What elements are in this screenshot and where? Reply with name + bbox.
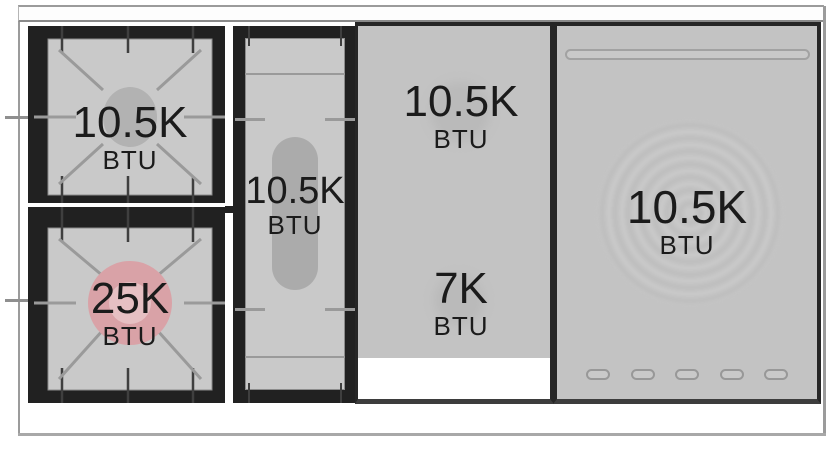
btu-value: 10.5K xyxy=(553,184,821,230)
btu-label-left-front: 25K BTU xyxy=(30,277,230,349)
griddle-line xyxy=(245,356,345,358)
grate-tick xyxy=(340,26,342,46)
grate-tick xyxy=(340,383,342,403)
btu-value: 10.5K xyxy=(30,101,230,145)
btu-label-right-zone: 10.5K BTU xyxy=(553,184,821,258)
grate-rail-bridge xyxy=(225,206,233,213)
grate-rail-stub xyxy=(325,118,355,121)
grate-tick xyxy=(248,383,250,403)
btu-label-griddle: 10.5K BTU xyxy=(233,172,357,238)
btu-value: 25K xyxy=(30,277,230,321)
range-frame-bottom-edge xyxy=(18,433,826,436)
range-frame-left-edge xyxy=(18,22,20,434)
btu-unit: BTU xyxy=(30,147,230,173)
range-cooktop-diagram: 10.5K BTU 25K BTU 10.5K BTU 10.5K BTU 7K… xyxy=(0,0,840,456)
control-pill xyxy=(720,369,744,380)
grate-rail-stub xyxy=(235,308,265,311)
btu-unit: BTU xyxy=(363,313,559,339)
btu-label-center-front: 7K BTU xyxy=(363,267,559,339)
grate-rail-stub xyxy=(325,308,355,311)
right-zone-handle xyxy=(565,49,810,60)
control-pill xyxy=(586,369,610,380)
btu-value: 7K xyxy=(363,267,559,311)
backguard-rail xyxy=(18,5,824,22)
btu-value: 10.5K xyxy=(233,172,357,210)
btu-unit: BTU xyxy=(363,126,559,152)
control-pill xyxy=(764,369,788,380)
grate-tick xyxy=(248,26,250,46)
control-pill xyxy=(631,369,655,380)
btu-label-center-rear: 10.5K BTU xyxy=(363,80,559,152)
grate-rail-stub xyxy=(235,118,265,121)
btu-unit: BTU xyxy=(233,212,357,238)
btu-unit: BTU xyxy=(30,323,230,349)
griddle-line xyxy=(245,73,345,75)
btu-unit: BTU xyxy=(553,232,821,258)
btu-value: 10.5K xyxy=(363,80,559,124)
range-frame-right-edge xyxy=(823,6,826,434)
control-pill xyxy=(675,369,699,380)
btu-label-left-rear: 10.5K BTU xyxy=(30,101,230,173)
